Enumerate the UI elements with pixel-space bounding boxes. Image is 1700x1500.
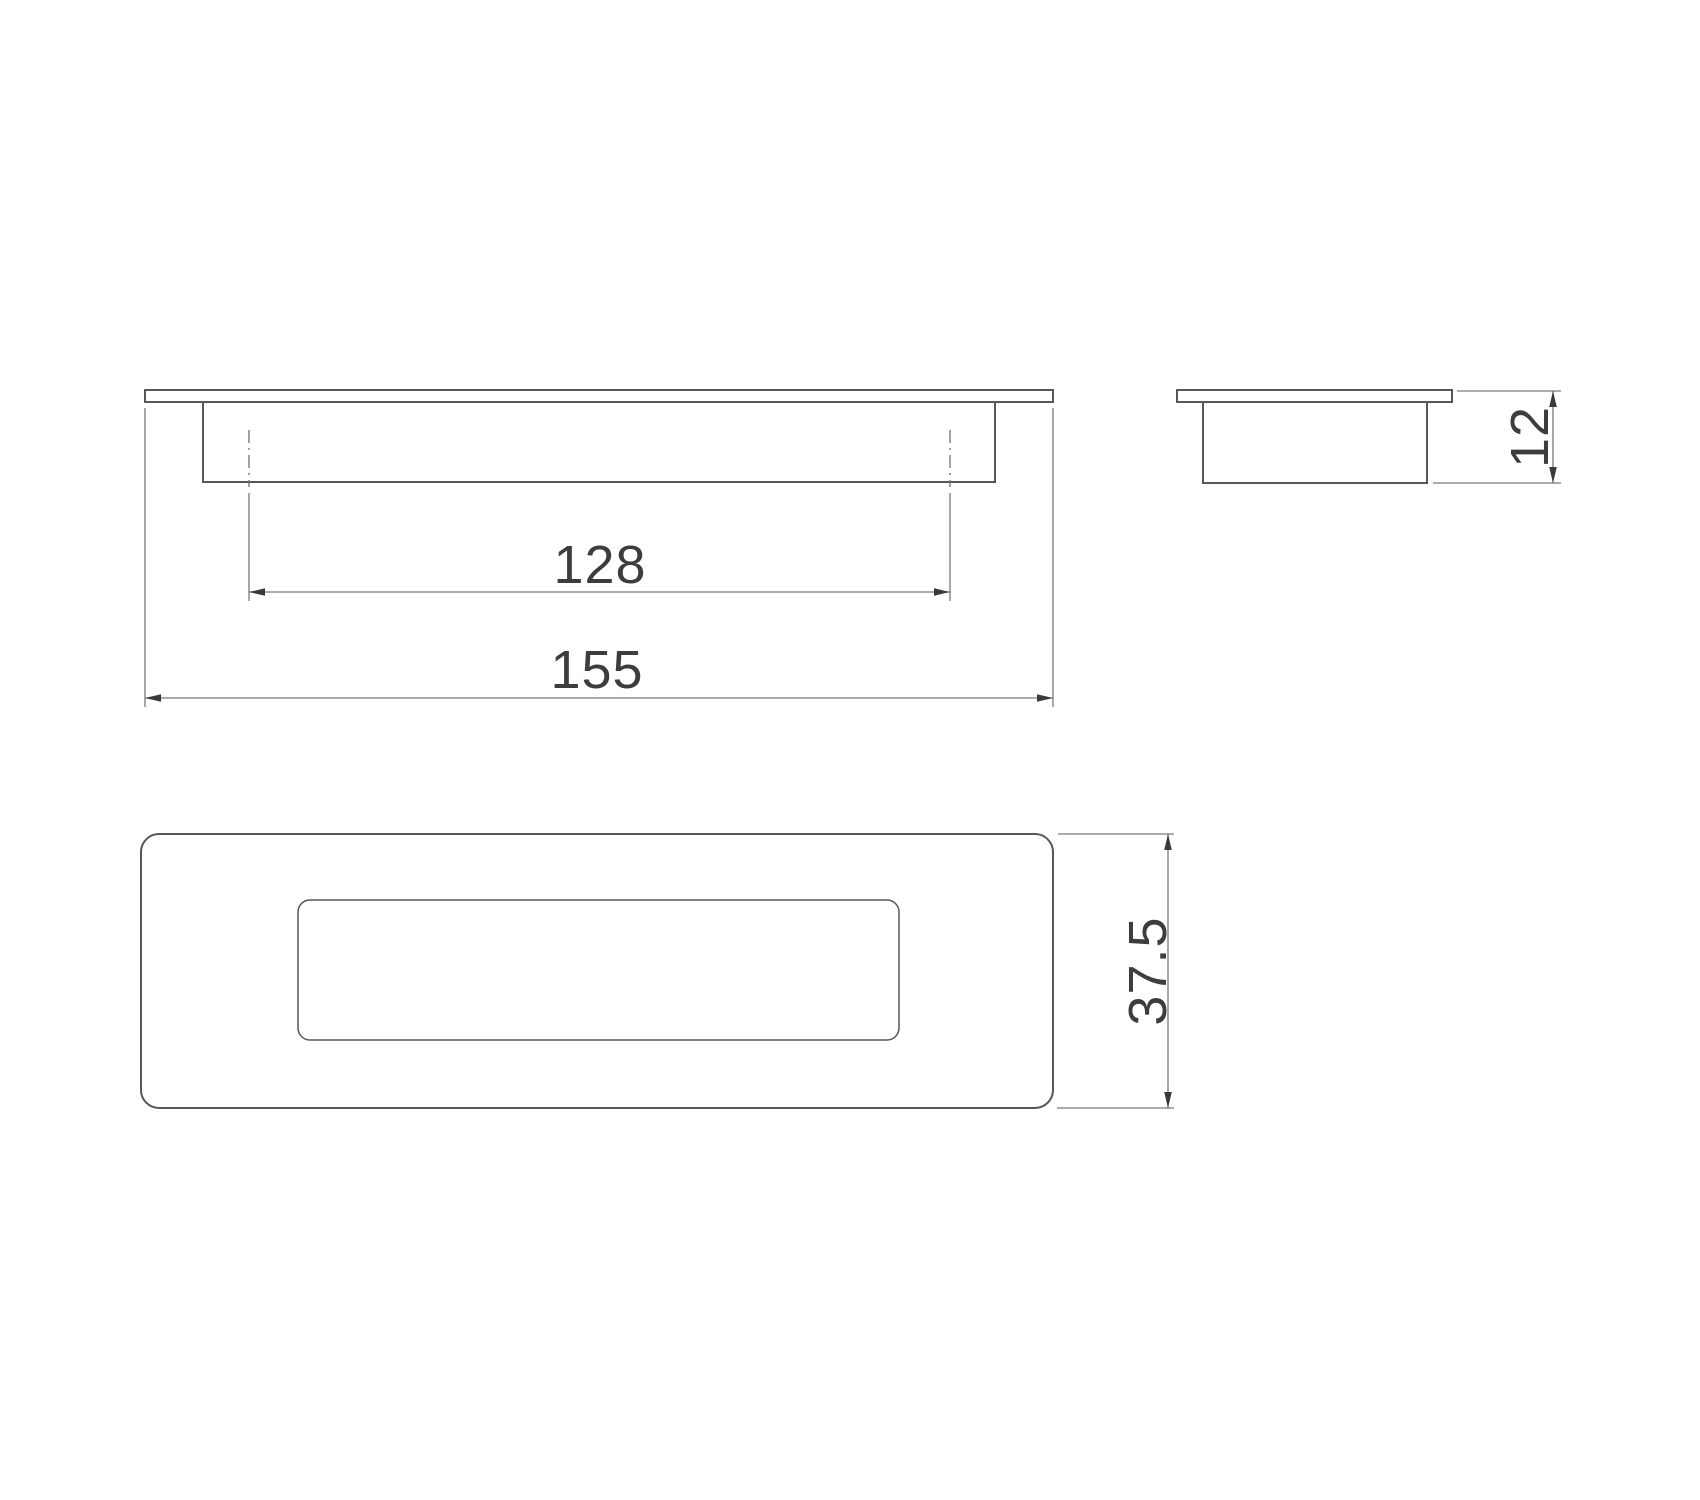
technical-drawing-canvas: 128 155 12 [0, 0, 1700, 1500]
dim-37-5-label: 37.5 [1118, 916, 1178, 1025]
plan-view: 37.5 [141, 834, 1178, 1108]
dim-128-label: 128 [553, 535, 646, 595]
plan-outer-outline [141, 834, 1053, 1108]
side-body-outline [1203, 402, 1427, 483]
front-view: 128 155 [145, 390, 1053, 707]
side-view: 12 [1177, 390, 1561, 483]
drawing-sheet: 128 155 12 [0, 0, 1700, 1500]
front-body-outline [203, 402, 995, 482]
plan-recess-outline [298, 900, 899, 1040]
dim-12-label: 12 [1500, 406, 1560, 468]
side-flange-outline [1177, 390, 1452, 402]
dim-155-label: 155 [550, 640, 643, 700]
front-flange-outline [145, 390, 1053, 402]
